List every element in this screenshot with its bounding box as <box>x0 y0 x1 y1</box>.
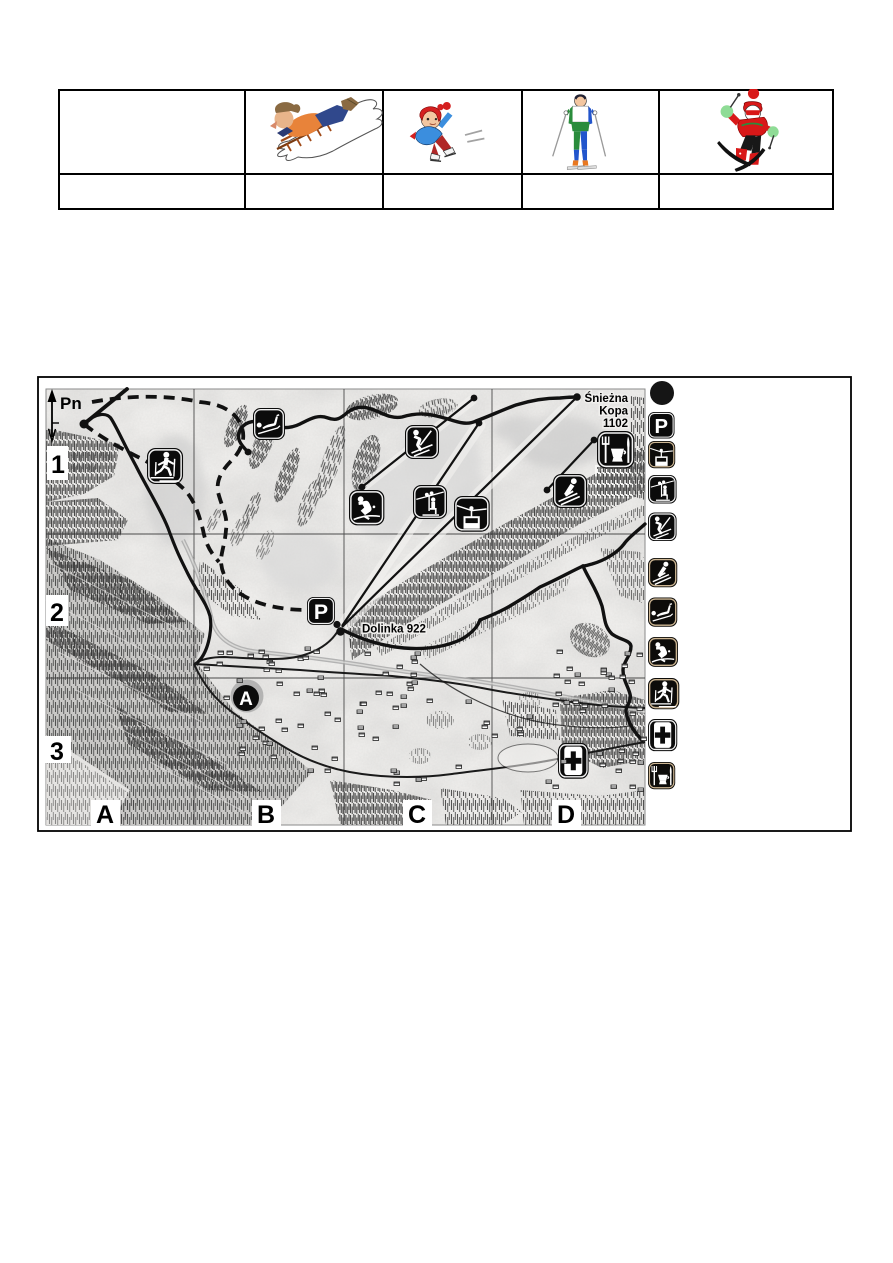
svg-text:2: 2 <box>50 599 64 627</box>
svg-text:1: 1 <box>51 451 65 479</box>
svg-text:D: D <box>557 801 575 829</box>
svg-text:Śnieżna: Śnieżna <box>585 392 629 405</box>
svg-text:C: C <box>408 801 426 829</box>
svg-text:B: B <box>257 801 275 829</box>
svg-text:A: A <box>96 801 114 829</box>
svg-text:A: A <box>239 689 253 710</box>
svg-text:Pn: Pn <box>60 394 82 413</box>
svg-text:1102: 1102 <box>603 418 628 430</box>
svg-text:3: 3 <box>50 738 64 766</box>
svg-text:Kopa: Kopa <box>599 406 628 418</box>
svg-text:Dolinka 922: Dolinka 922 <box>362 624 426 636</box>
